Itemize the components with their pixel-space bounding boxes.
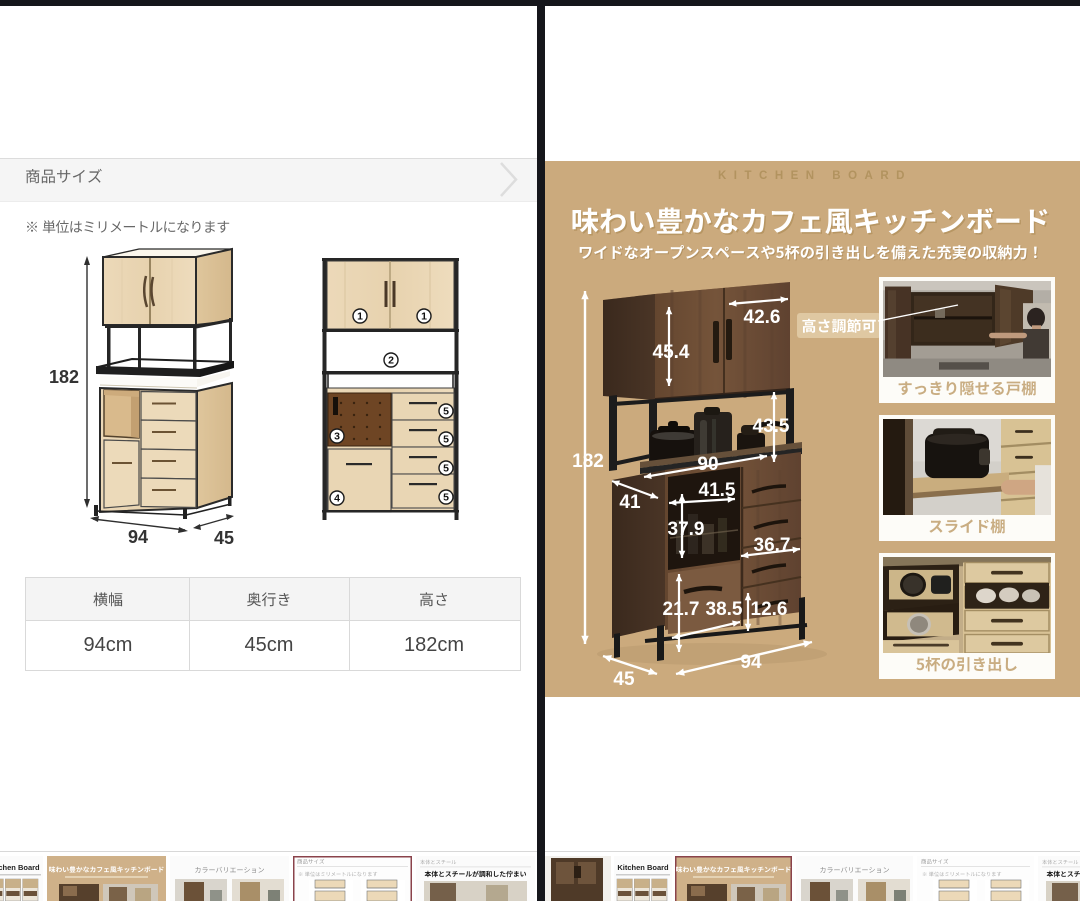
svg-text:94: 94: [740, 652, 762, 673]
svg-text:182: 182: [572, 451, 604, 472]
svg-text:1: 1: [421, 311, 427, 323]
svg-text:43.5: 43.5: [753, 416, 790, 437]
svg-text:KITCHEN BOARD: KITCHEN BOARD: [718, 170, 912, 182]
svg-text:Kitchen Board: Kitchen Board: [0, 863, 40, 872]
svg-text:90: 90: [697, 454, 718, 475]
svg-text:38.5: 38.5: [706, 599, 743, 620]
svg-text:182: 182: [49, 367, 79, 387]
svg-text:5: 5: [443, 492, 449, 504]
svg-text:36.7: 36.7: [754, 535, 791, 556]
svg-text:Kitchen Board: Kitchen Board: [617, 863, 669, 872]
svg-text:5: 5: [443, 406, 449, 418]
svg-text:94cm: 94cm: [84, 634, 133, 656]
svg-text:2: 2: [388, 355, 394, 367]
svg-text:182cm: 182cm: [404, 634, 464, 656]
svg-text:45cm: 45cm: [245, 634, 294, 656]
svg-text:94: 94: [128, 527, 148, 547]
svg-text:37.9: 37.9: [668, 519, 705, 540]
svg-text:5: 5: [443, 463, 449, 475]
svg-text:3: 3: [334, 431, 340, 443]
svg-text:1: 1: [357, 311, 363, 323]
svg-text:41: 41: [619, 492, 641, 513]
svg-text:12.6: 12.6: [751, 599, 788, 620]
svg-text:4: 4: [334, 493, 340, 505]
svg-text:21.7: 21.7: [663, 599, 700, 620]
svg-text:45: 45: [613, 669, 635, 690]
svg-text:41.5: 41.5: [699, 480, 736, 501]
svg-text:45: 45: [214, 528, 234, 548]
svg-text:45.4: 45.4: [653, 342, 690, 363]
svg-text:42.6: 42.6: [744, 307, 781, 328]
svg-text:5: 5: [443, 434, 449, 446]
